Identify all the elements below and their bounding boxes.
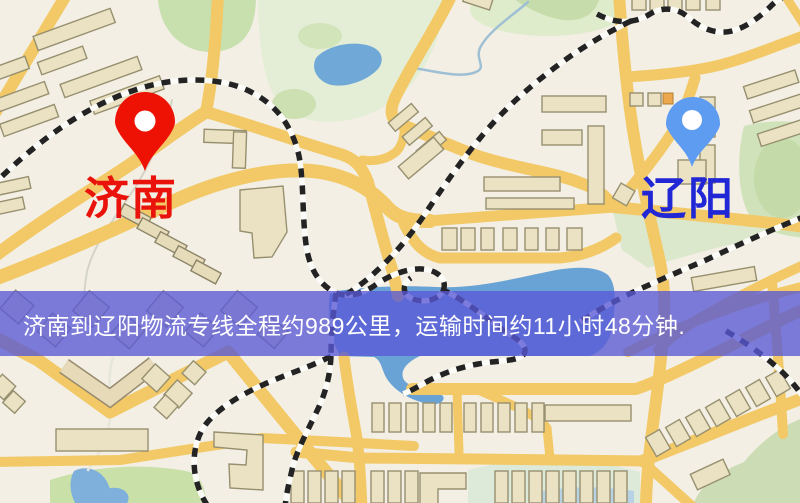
route-info-banner: 济南到辽阳物流专线全程约989公里，运输时间约11小时48分钟. [0, 291, 800, 356]
destination-city-label: 辽阳 [641, 176, 735, 221]
origin-city-label: 济南 [84, 176, 178, 221]
map-graphics [0, 0, 800, 503]
route-info-text: 济南到辽阳物流专线全程约989公里，运输时间约11小时48分钟. [0, 307, 685, 341]
map-view[interactable]: 济南 辽阳 济南到辽阳物流专线全程约989公里，运输时间约11小时48分钟. [0, 0, 800, 503]
destination-pin-hole [682, 110, 702, 130]
origin-pin-hole [135, 111, 156, 132]
